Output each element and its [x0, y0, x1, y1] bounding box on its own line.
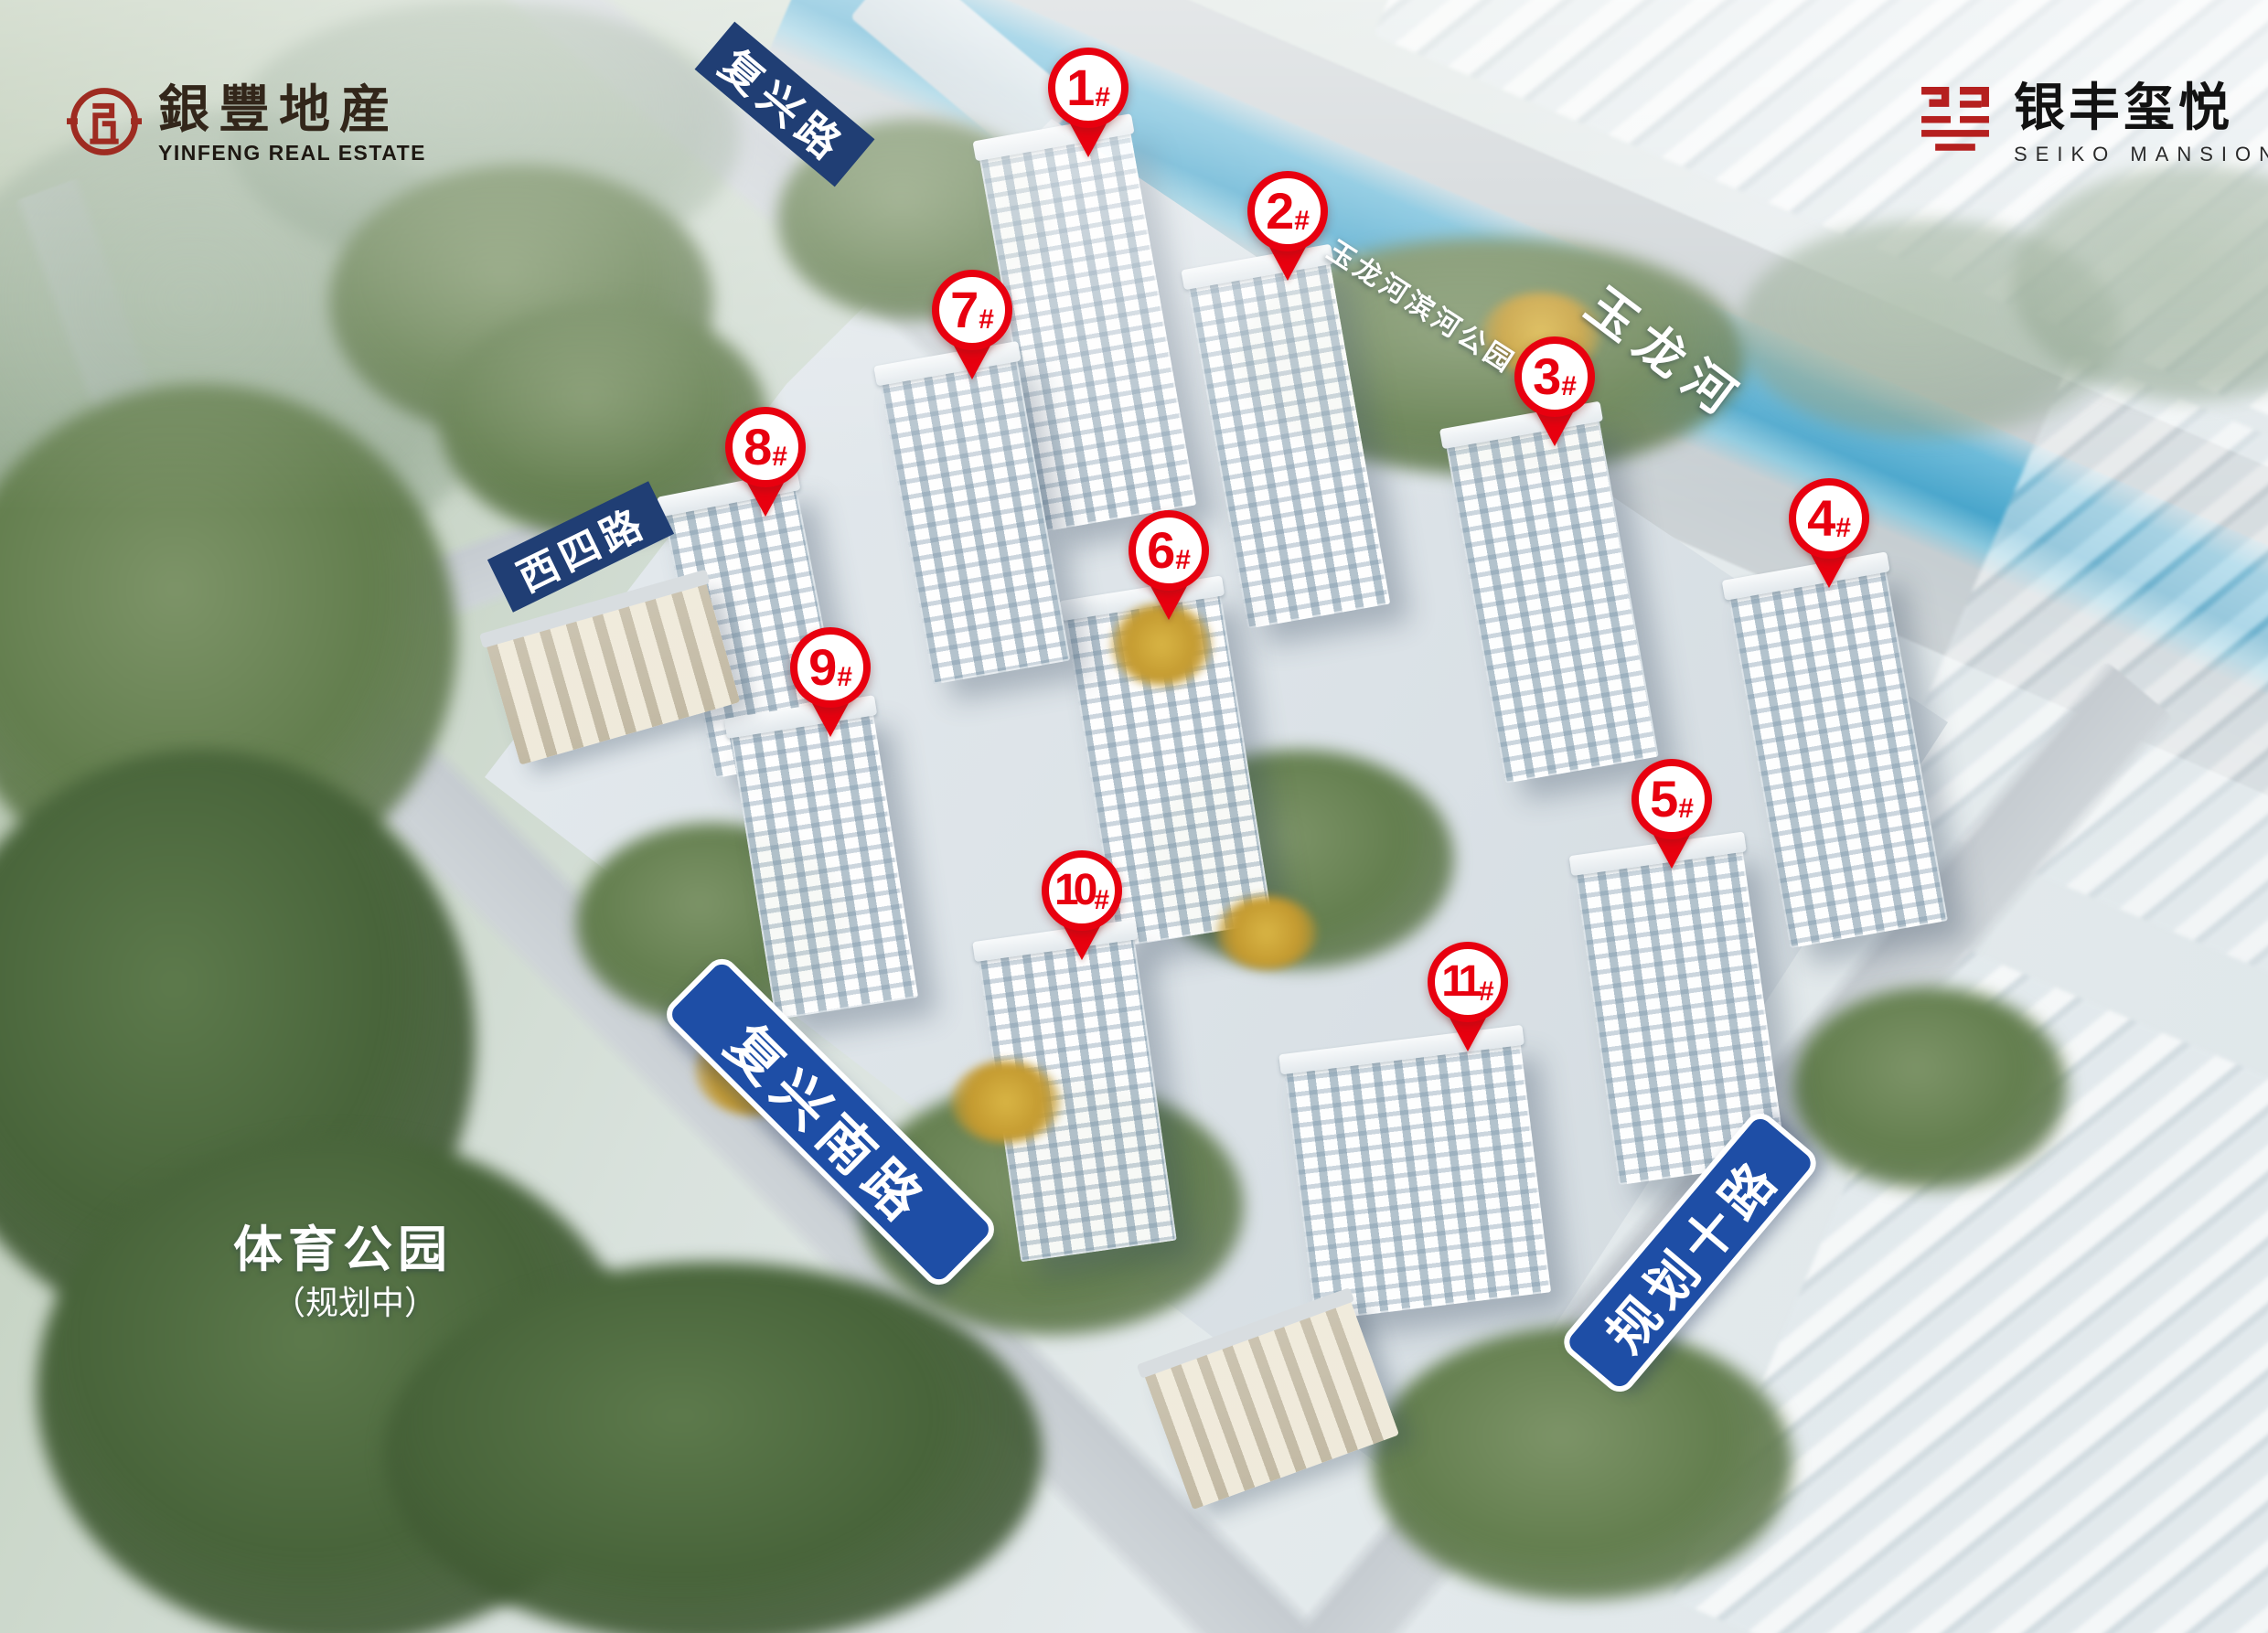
pin-hash: # — [837, 664, 852, 691]
pin-number: 3 — [1533, 351, 1559, 402]
pin-number: 10 — [1054, 869, 1092, 913]
tree-grove — [1792, 987, 2067, 1189]
seiko-mansion-mark-icon — [1917, 82, 1994, 159]
pin-hash: # — [1835, 515, 1851, 542]
developer-name-cn: 銀豐地産 — [158, 84, 426, 135]
pin-hash: # — [772, 443, 787, 471]
pin-number: 6 — [1147, 525, 1173, 576]
building-marker-2[interactable]: 2# — [1247, 171, 1328, 281]
pin-circle: 3# — [1514, 336, 1595, 417]
pin-hash: # — [1678, 795, 1694, 823]
pin-hash: # — [1294, 208, 1310, 235]
sports-park-label: 体育公园 — [233, 1209, 453, 1281]
pin-number: 9 — [808, 642, 835, 693]
pin-circle: 8# — [725, 407, 806, 487]
building-marker-3[interactable]: 3# — [1514, 336, 1595, 446]
pin-hash: # — [1561, 373, 1577, 400]
project-name-en: SEIKO MANSION — [2014, 143, 2268, 166]
pin-number: 1 — [1066, 62, 1093, 113]
pin-circle: 11# — [1428, 942, 1508, 1022]
building-11 — [1284, 1038, 1551, 1321]
yinfeng-logo: 銀豐地産 YINFENG REAL ESTATE — [67, 84, 426, 165]
pin-circle: 4# — [1789, 478, 1869, 559]
building-marker-4[interactable]: 4# — [1789, 478, 1869, 588]
pin-number: 8 — [744, 422, 770, 473]
autumn-tree — [951, 1061, 1061, 1143]
pin-circle: 7# — [932, 270, 1012, 350]
developer-name-en: YINFENG REAL ESTATE — [158, 141, 426, 165]
pin-circle: 6# — [1129, 510, 1209, 591]
seiko-mansion-logo: 银丰玺悦 SEIKO MANSION — [1917, 82, 2268, 166]
building-marker-1[interactable]: 1# — [1048, 48, 1129, 157]
pin-number: 11 — [1441, 960, 1477, 1004]
pin-circle: 9# — [790, 627, 871, 708]
project-name-cn: 银丰玺悦 — [2014, 82, 2268, 133]
building-marker-8[interactable]: 8# — [725, 407, 806, 517]
building-marker-10[interactable]: 10# — [1042, 850, 1122, 960]
pin-hash: # — [1094, 887, 1109, 914]
pin-hash: # — [1095, 84, 1110, 112]
tree-grove — [1372, 1326, 1792, 1600]
pin-hash: # — [979, 306, 994, 334]
pin-circle: 1# — [1048, 48, 1129, 128]
autumn-tree — [1216, 896, 1317, 969]
pin-hash: # — [1175, 547, 1191, 574]
pin-circle: 2# — [1247, 171, 1328, 251]
building-marker-6[interactable]: 6# — [1129, 510, 1209, 620]
tree-grove — [384, 1262, 1043, 1633]
pin-hash: # — [1479, 978, 1494, 1006]
building-marker-5[interactable]: 5# — [1631, 759, 1712, 869]
building-marker-11[interactable]: 11# — [1428, 942, 1508, 1051]
pin-number: 4 — [1807, 493, 1834, 544]
pin-circle: 10# — [1042, 850, 1122, 931]
yinfeng-seal-icon — [67, 84, 142, 159]
masterplan-rendering: 复兴路 西四路 复兴南路 规划十路 玉龙河滨河公园 玉龙河 体育公园 （规划中）… — [0, 0, 2268, 1633]
building-marker-9[interactable]: 9# — [790, 627, 871, 737]
sports-park-note: （规划中） — [273, 1276, 437, 1324]
building-marker-7[interactable]: 7# — [932, 270, 1012, 379]
pin-number: 5 — [1650, 774, 1676, 825]
pin-circle: 5# — [1631, 759, 1712, 839]
pin-number: 7 — [950, 284, 977, 336]
pin-number: 2 — [1266, 186, 1292, 237]
commercial-building-south — [1143, 1297, 1399, 1510]
